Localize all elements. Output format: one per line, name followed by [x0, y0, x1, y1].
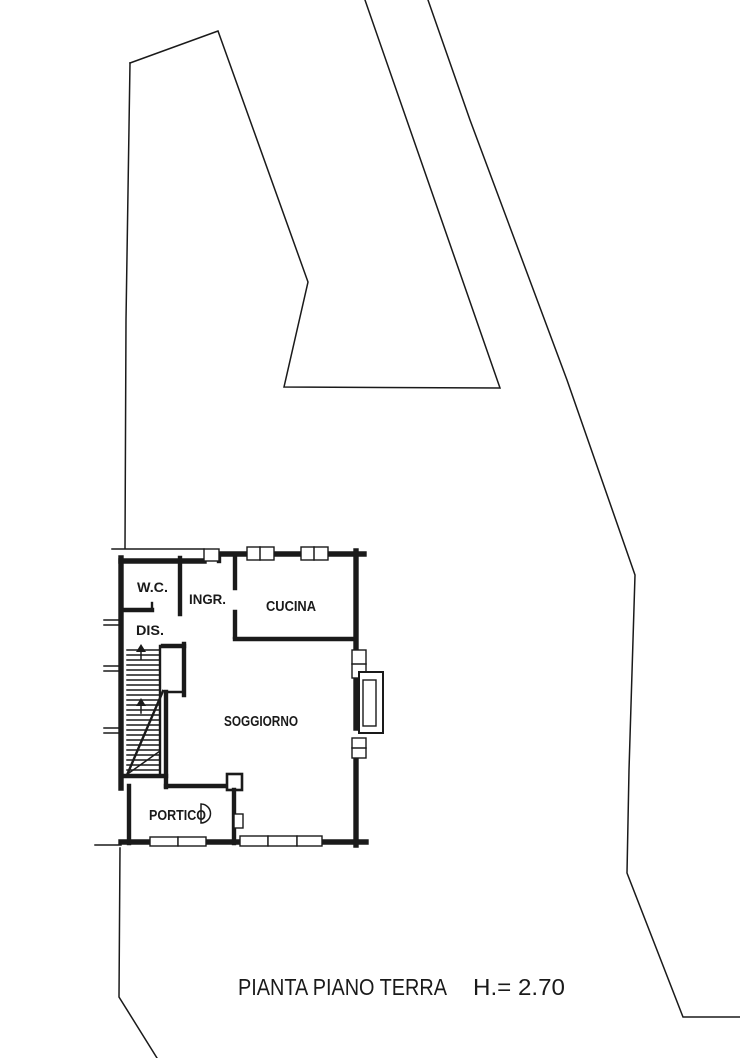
- stair-arrow-2-head: [136, 698, 146, 706]
- room-label-disimpegno: DIS.: [136, 622, 164, 638]
- stair-arrow-1-head: [136, 644, 146, 652]
- bay-window-inner: [363, 680, 376, 726]
- window-bottom-2: [268, 836, 297, 846]
- pillar-base: [227, 774, 242, 790]
- floor-plan-drawing: W.C. INGR. CUCINA DIS. SOGGIORNO PORTICO…: [0, 0, 740, 1058]
- caption: PIANTA PIANO TERRA H.= 2.70: [238, 974, 565, 1000]
- room-label-portico: PORTICO: [149, 808, 206, 824]
- boundary-road-line: [428, 0, 740, 1017]
- room-label-soggiorno: SOGGIORNO: [224, 714, 298, 730]
- room-label-wc: W.C.: [137, 579, 168, 595]
- drawing-sheet: { "plan": { "rooms": [ {"name": "wc", "l…: [0, 0, 740, 1058]
- window-sill-left-2: [104, 666, 118, 671]
- building-exterior-walls: [121, 551, 366, 845]
- window-top-ingresso: [204, 549, 219, 561]
- boundary-left-lower: [119, 848, 157, 1058]
- portico-rail-2: [178, 837, 206, 846]
- portico-pillar: [227, 774, 243, 843]
- window-sill-left-1: [104, 620, 118, 625]
- room-label-cucina: CUCINA: [266, 599, 316, 615]
- parcel-outline: [130, 0, 500, 388]
- caption-title: PIANTA PIANO TERRA: [238, 974, 448, 1000]
- caption-height: H.= 2.70: [473, 974, 565, 1000]
- staircase: [127, 644, 163, 776]
- site-boundaries: [95, 0, 740, 1058]
- window-bottom-3: [297, 836, 322, 846]
- room-label-ingresso: INGR.: [189, 591, 226, 607]
- window-bottom-1: [240, 836, 268, 846]
- portico-rail-1: [150, 837, 178, 846]
- pillar-step: [234, 814, 243, 828]
- window-sill-left-3: [104, 728, 118, 733]
- boundary-left-upper: [125, 63, 130, 548]
